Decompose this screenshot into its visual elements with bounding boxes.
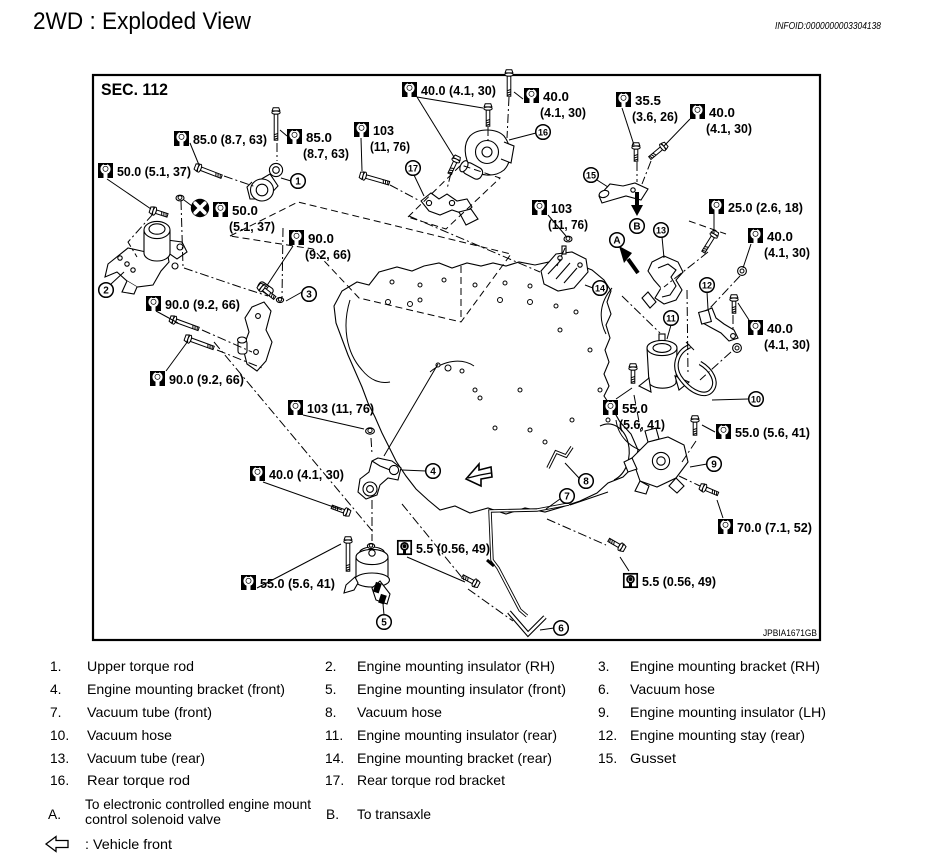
svg-text:(4.1, 30): (4.1, 30): [706, 122, 752, 136]
svg-text:Rear torque rod bracket: Rear torque rod bracket: [357, 773, 505, 788]
svg-text:A.: A.: [48, 807, 61, 822]
svg-text:Engine mounting insulator (LH): Engine mounting insulator (LH): [630, 705, 826, 720]
svg-text:10.: 10.: [50, 728, 69, 743]
svg-text:55.0: 55.0: [622, 402, 648, 416]
svg-text:6.: 6.: [598, 682, 610, 697]
svg-text:B.: B.: [326, 807, 339, 822]
svg-text:2: 2: [103, 285, 109, 296]
svg-text:90.0: 90.0: [308, 232, 334, 246]
svg-text:Gusset: Gusset: [630, 751, 676, 766]
svg-text:25.0 (2.6, 18): 25.0 (2.6, 18): [728, 201, 803, 215]
svg-text:14.: 14.: [325, 751, 344, 766]
svg-text:8: 8: [583, 476, 589, 487]
svg-text:2.: 2.: [325, 659, 337, 674]
svg-text:3: 3: [306, 289, 312, 300]
svg-text:11: 11: [666, 313, 676, 323]
svg-text:40.0: 40.0: [543, 90, 569, 104]
svg-text:1.: 1.: [50, 659, 62, 674]
svg-text:A: A: [613, 235, 620, 246]
svg-text:50.0: 50.0: [232, 204, 258, 218]
svg-text:SEC. 112: SEC. 112: [101, 81, 168, 99]
svg-text:(3.6, 26): (3.6, 26): [632, 110, 678, 124]
svg-text:55.0 (5.6, 41): 55.0 (5.6, 41): [260, 577, 335, 591]
svg-text:17.: 17.: [325, 773, 344, 788]
svg-text:Engine mounting bracket (RH): Engine mounting bracket (RH): [630, 659, 820, 674]
svg-text:103 (11, 76): 103 (11, 76): [307, 402, 374, 416]
svg-text:16.: 16.: [50, 773, 69, 788]
svg-text:INFOID:0000000003304138: INFOID:0000000003304138: [775, 21, 881, 32]
svg-text:Engine mounting insulator (rea: Engine mounting insulator (rear): [357, 728, 557, 743]
svg-text:9.: 9.: [598, 705, 610, 720]
svg-text:3.: 3.: [598, 659, 610, 674]
svg-text:5.: 5.: [325, 682, 337, 697]
svg-text:5.5 (0.56, 49): 5.5 (0.56, 49): [416, 542, 490, 556]
svg-text:103: 103: [373, 124, 394, 138]
svg-text:Upper torque rod: Upper torque rod: [87, 659, 194, 674]
svg-text:Vacuum hose: Vacuum hose: [630, 682, 715, 697]
svg-text:Vacuum tube (rear): Vacuum tube (rear): [87, 751, 205, 766]
svg-text:40.0: 40.0: [767, 322, 793, 336]
svg-text:90.0 (9.2, 66): 90.0 (9.2, 66): [169, 373, 244, 387]
svg-text:To electronic controlled engin: To electronic controlled engine mount: [85, 797, 311, 812]
svg-text:7: 7: [564, 491, 570, 502]
svg-text:2WD : Exploded View: 2WD : Exploded View: [33, 8, 252, 35]
svg-text:4: 4: [430, 466, 436, 477]
svg-text:14: 14: [595, 283, 605, 293]
svg-text:6: 6: [558, 623, 564, 634]
svg-text:B: B: [633, 221, 640, 232]
svg-text:15.: 15.: [598, 751, 617, 766]
svg-text:Vacuum tube (front): Vacuum tube (front): [87, 705, 212, 720]
svg-text:13: 13: [656, 225, 666, 235]
svg-text:12: 12: [702, 280, 712, 290]
svg-text:85.0: 85.0: [306, 131, 332, 145]
svg-text:(4.1, 30): (4.1, 30): [540, 106, 586, 120]
svg-text:10: 10: [751, 394, 761, 404]
svg-text:(11, 76): (11, 76): [548, 218, 588, 232]
svg-text:(8.7, 63): (8.7, 63): [303, 147, 349, 161]
svg-text:Engine mounting bracket (rear): Engine mounting bracket (rear): [357, 751, 552, 766]
svg-text:55.0 (5.6, 41): 55.0 (5.6, 41): [735, 426, 810, 440]
svg-text:11.: 11.: [325, 728, 343, 743]
svg-text:(5.1, 37): (5.1, 37): [229, 220, 275, 234]
svg-text:90.0 (9.2, 66): 90.0 (9.2, 66): [165, 298, 240, 312]
svg-text:16: 16: [538, 127, 548, 137]
svg-text:To transaxle: To transaxle: [357, 807, 431, 822]
svg-text:70.0 (7.1, 52): 70.0 (7.1, 52): [737, 521, 812, 535]
svg-text:7.: 7.: [50, 705, 62, 720]
svg-text:Engine mounting bracket (front: Engine mounting bracket (front): [87, 682, 285, 697]
svg-text:: Vehicle front: : Vehicle front: [85, 837, 172, 852]
svg-text:50.0 (5.1, 37): 50.0 (5.1, 37): [117, 165, 191, 179]
svg-text:(4.1, 30): (4.1, 30): [764, 338, 810, 352]
svg-text:40.0 (4.1, 30): 40.0 (4.1, 30): [421, 84, 496, 98]
svg-text:12.: 12.: [598, 728, 617, 743]
svg-text:5: 5: [381, 617, 387, 628]
svg-text:103: 103: [551, 202, 572, 216]
svg-text:40.0 (4.1, 30): 40.0 (4.1, 30): [269, 468, 344, 482]
svg-text:JPBIA1671GB: JPBIA1671GB: [763, 628, 817, 639]
svg-text:Rear torque rod: Rear torque rod: [87, 773, 190, 788]
svg-text:85.0 (8.7, 63): 85.0 (8.7, 63): [193, 133, 267, 147]
svg-text:Vacuum hose: Vacuum hose: [87, 728, 172, 743]
svg-text:control solenoid valve: control solenoid valve: [85, 812, 221, 827]
svg-text:(11, 76): (11, 76): [370, 140, 410, 154]
svg-text:(4.1, 30): (4.1, 30): [764, 246, 810, 260]
svg-text:1: 1: [295, 176, 301, 187]
svg-text:5.5 (0.56, 49): 5.5 (0.56, 49): [642, 575, 716, 589]
svg-text:(5.6, 41): (5.6, 41): [619, 418, 665, 432]
svg-text:(9.2, 66): (9.2, 66): [305, 248, 351, 262]
svg-text:15: 15: [586, 170, 596, 180]
svg-text:40.0: 40.0: [767, 230, 793, 244]
svg-text:4.: 4.: [50, 682, 62, 697]
svg-text:13.: 13.: [50, 751, 69, 766]
svg-text:9: 9: [711, 459, 717, 470]
svg-text:Engine mounting insulator (fro: Engine mounting insulator (front): [357, 682, 566, 697]
svg-text:35.5: 35.5: [635, 94, 661, 108]
svg-text:Engine mounting insulator (RH): Engine mounting insulator (RH): [357, 659, 555, 674]
svg-text:Vacuum hose: Vacuum hose: [357, 705, 442, 720]
svg-text:8.: 8.: [325, 705, 337, 720]
svg-text:17: 17: [408, 163, 418, 173]
svg-text:Engine mounting stay (rear): Engine mounting stay (rear): [630, 728, 805, 743]
svg-text:40.0: 40.0: [709, 106, 735, 120]
